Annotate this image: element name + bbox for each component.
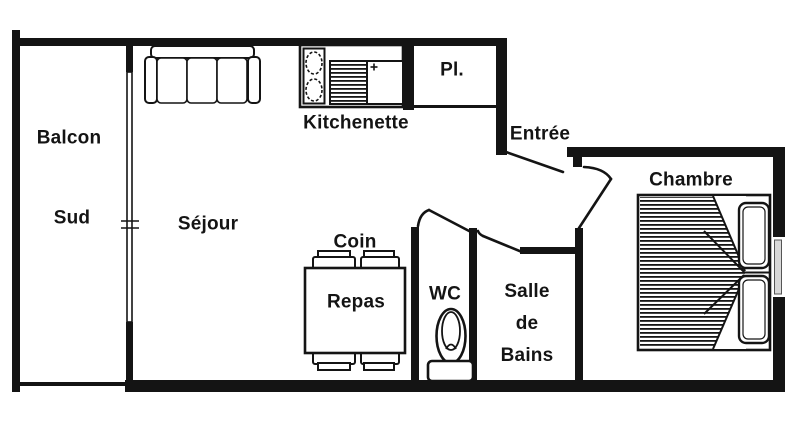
kitchenette-closet-divider	[403, 46, 414, 110]
bathroom-door-leaf	[483, 236, 522, 252]
closet-bottom-line	[414, 105, 496, 108]
wc-door-arc	[418, 210, 429, 226]
chair	[361, 251, 399, 269]
wc-right-wall	[469, 228, 477, 380]
kitchen-counter	[300, 45, 403, 107]
bedroom-top-wall	[567, 147, 785, 157]
pillow	[739, 276, 769, 343]
toilet-tank	[428, 361, 473, 381]
chair	[361, 352, 399, 370]
bathroom-top-wall	[520, 247, 575, 254]
floor-plan: Balcon Sud Séjour Kitchenette Pl. Entrée…	[0, 0, 800, 435]
room-label-salle: Salle	[501, 276, 554, 308]
sink-drainboard	[331, 63, 367, 103]
room-label-placard: Pl.	[440, 61, 464, 80]
pillow	[739, 203, 769, 268]
closet-right-wall	[496, 38, 507, 155]
room-label-bains: Bains	[501, 340, 554, 372]
toilet	[428, 309, 473, 381]
room-label-balcon-sud: Sud	[54, 209, 91, 228]
sofa-cushion	[157, 58, 187, 103]
chair	[313, 251, 355, 269]
room-label-wc: WC	[429, 285, 461, 304]
bedroom-door-stub	[573, 157, 582, 167]
chair	[313, 352, 355, 370]
entrance-door-leaf	[506, 152, 563, 172]
floor-plan-drawing	[0, 0, 800, 435]
sofa-armrest-left	[145, 57, 157, 103]
room-label-entree: Entrée	[510, 125, 570, 144]
room-label-balcon: Balcon	[37, 129, 102, 148]
wc-left-wall	[411, 227, 419, 380]
balcony-window-wall	[121, 44, 139, 384]
bedroom-door-arc	[584, 167, 611, 179]
sofa-cushion	[217, 58, 247, 103]
room-label-coin: Coin	[333, 233, 376, 252]
bed	[638, 195, 770, 350]
sofa-armrest-right	[248, 57, 260, 103]
room-label-de: de	[501, 308, 554, 340]
left-wall	[12, 30, 20, 392]
wc-door-leaf	[429, 210, 471, 232]
sofa-cushion	[187, 58, 217, 103]
top-wall	[12, 38, 507, 46]
bedroom-door-leaf	[579, 179, 611, 228]
right-wall-upper	[773, 147, 785, 237]
sofa	[145, 46, 260, 103]
room-label-kitchenette: Kitchenette	[303, 114, 409, 133]
room-label-chambre: Chambre	[649, 171, 733, 190]
bedroom-left-wall	[575, 228, 583, 380]
interior-walls	[403, 46, 583, 380]
balcony-bottom-edge	[12, 382, 128, 386]
room-label-repas: Repas	[327, 293, 385, 312]
room-label-salle-de-bains: Salle de Bains	[501, 276, 554, 372]
right-wall-lower	[773, 297, 785, 392]
room-label-sejour: Séjour	[178, 215, 238, 234]
bedroom-window	[773, 237, 785, 297]
